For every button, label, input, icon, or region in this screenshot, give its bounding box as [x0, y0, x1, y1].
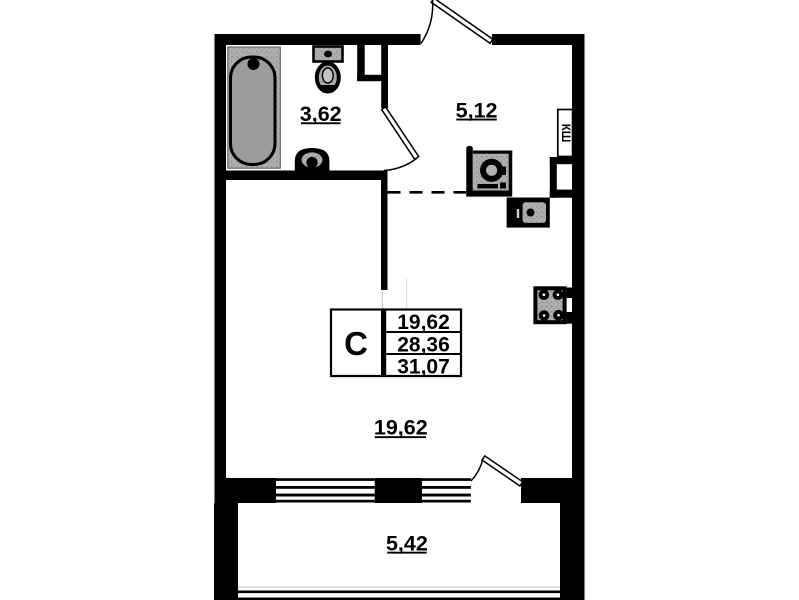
svg-text:КШ: КШ: [559, 124, 571, 143]
svg-text:28,36: 28,36: [397, 334, 450, 357]
svg-text:С: С: [344, 325, 368, 362]
svg-text:19,62: 19,62: [397, 311, 450, 334]
svg-text:19,62: 19,62: [374, 416, 428, 440]
svg-text:31,07: 31,07: [397, 356, 450, 379]
